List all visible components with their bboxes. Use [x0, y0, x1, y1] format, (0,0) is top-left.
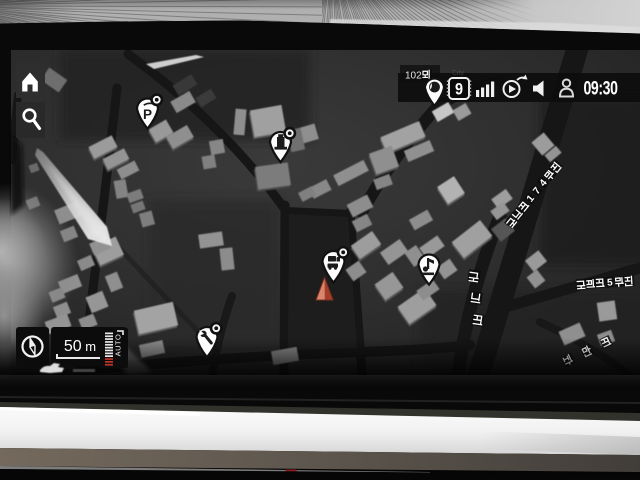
- svg-text:09:30: 09:30: [583, 77, 617, 99]
- svg-text:AUTO: AUTO: [114, 334, 123, 357]
- svg-text:9: 9: [455, 80, 463, 98]
- svg-text:P: P: [143, 107, 152, 122]
- svg-text:50 m: 50 m: [64, 338, 96, 355]
- svg-text:City: City: [452, 70, 465, 77]
- svg-text:102: 102: [405, 71, 422, 82]
